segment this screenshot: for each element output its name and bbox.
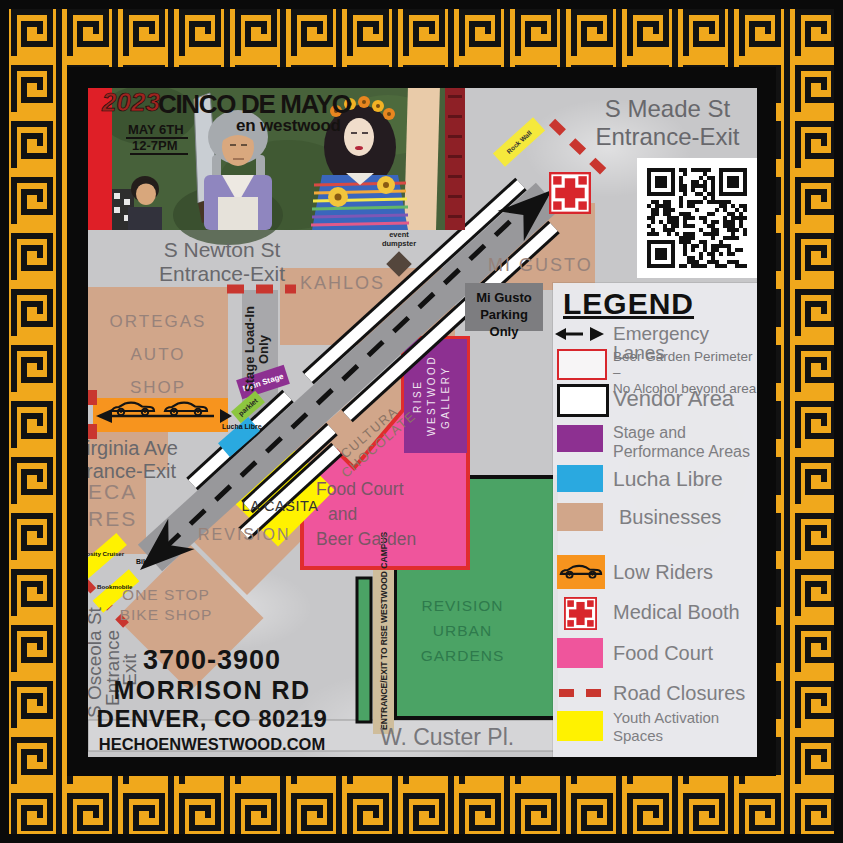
mi-gusto-parking-sign: Mi Gusto Parking Only bbox=[465, 283, 543, 331]
vendor-area-swatch bbox=[557, 384, 609, 417]
bikes-label: Bikes bbox=[136, 558, 155, 565]
one-stop-label: ONE STOPBIKE SHOP bbox=[112, 585, 220, 625]
banner-time: 12-7PM bbox=[132, 138, 178, 153]
gardens-label: REVISIONURBANGARDENS bbox=[410, 593, 515, 668]
border-band-left bbox=[9, 9, 67, 834]
campus-path-label: ENTRANCE/EXIT TO RISE WESTWOOD CAMPUS bbox=[379, 531, 389, 730]
svg-text:dumpster: dumpster bbox=[382, 239, 416, 248]
rock-wall-space: Rock Wall bbox=[493, 117, 545, 167]
la-casita-label: LA CASITA bbox=[238, 498, 322, 515]
border-band-top bbox=[9, 9, 834, 67]
low-riders-swatch bbox=[557, 555, 605, 589]
lucha-swatch bbox=[557, 465, 603, 492]
legend-item-label: Stage andPerformance Areas bbox=[613, 423, 750, 461]
kahlos-label: KAHLOS bbox=[300, 273, 385, 294]
medical-booth-icon bbox=[550, 173, 590, 213]
banner-date: MAY 6TH bbox=[128, 122, 184, 137]
revision-label: REVISION bbox=[198, 526, 290, 544]
stage-swatch bbox=[557, 425, 603, 452]
custer-label: W. Custer Pl. bbox=[380, 724, 514, 750]
event-map-poster: Rock Wall Main Stage parklet Lucha Libre… bbox=[0, 0, 843, 843]
youth-swatch bbox=[557, 711, 603, 741]
road-closure-dash bbox=[559, 689, 574, 697]
legend-item-label: Low Riders bbox=[613, 563, 713, 582]
food-court-label: Food Court and Beer Garden bbox=[316, 477, 476, 552]
medical-booth-icon bbox=[564, 597, 597, 630]
azteca-label: ECARES bbox=[88, 478, 137, 532]
legend-item-label: Businesses bbox=[619, 508, 721, 527]
lowrider-car-icon bbox=[559, 563, 603, 579]
legend-title: LEGEND bbox=[563, 287, 694, 321]
road-closure-dash bbox=[586, 689, 601, 697]
curiosity-cruiser-label: Curiosity Cruiser bbox=[88, 550, 125, 557]
lucha-libre-label: Lucha Libre bbox=[222, 423, 262, 430]
event-map: Rock Wall Main Stage parklet Lucha Libre… bbox=[88, 88, 757, 757]
banner-title: CINCO DE MAYO bbox=[158, 89, 353, 119]
newton-entrance-label: S Newton StEntrance-Exit bbox=[137, 238, 307, 286]
legend-item-label: Road Closures bbox=[613, 684, 745, 703]
event-banner-art: 2023 CINCO DE MAYO en westwood MAY 6TH 1… bbox=[88, 88, 465, 245]
address-block: 3700-3900 MORRISON RD DENVER, CO 80219 H… bbox=[92, 645, 332, 757]
emergency-lanes-icon bbox=[555, 325, 605, 343]
virginia-entrance-label: irginia Averance-Exit bbox=[88, 437, 178, 483]
meade-entrance-label: S Meade StEntrance-Exit bbox=[575, 95, 757, 150]
legend-item-label: Food Court bbox=[613, 644, 713, 663]
legend-item-label: Lucha Libre bbox=[613, 469, 723, 488]
art-arm bbox=[404, 88, 440, 230]
border-band-bottom bbox=[9, 776, 834, 834]
food-court-swatch bbox=[557, 638, 603, 668]
legend-item-label: Medical Booth bbox=[613, 603, 740, 622]
banner-year: 2023 bbox=[101, 88, 160, 117]
beer-garden-swatch bbox=[557, 349, 607, 380]
mi-gusto-label: MI GUSTO bbox=[488, 255, 593, 276]
legend-panel: LEGEND Emergency Lanes Beer Garden Perim… bbox=[553, 283, 757, 757]
legend-item-label: Vendor Area bbox=[613, 389, 734, 408]
border-band-right bbox=[776, 9, 834, 834]
qr-code bbox=[637, 158, 757, 278]
svg-text:event: event bbox=[389, 230, 409, 239]
businesses-swatch bbox=[557, 503, 603, 531]
ortegas-label: ORTEGASAUTOSHOP bbox=[88, 305, 228, 404]
legend-item-label: Youth ActivationSpaces bbox=[613, 709, 719, 745]
banner-subtitle: en westwood bbox=[236, 116, 341, 135]
gardens-strip bbox=[357, 578, 371, 722]
art-meander-strip bbox=[445, 88, 465, 230]
